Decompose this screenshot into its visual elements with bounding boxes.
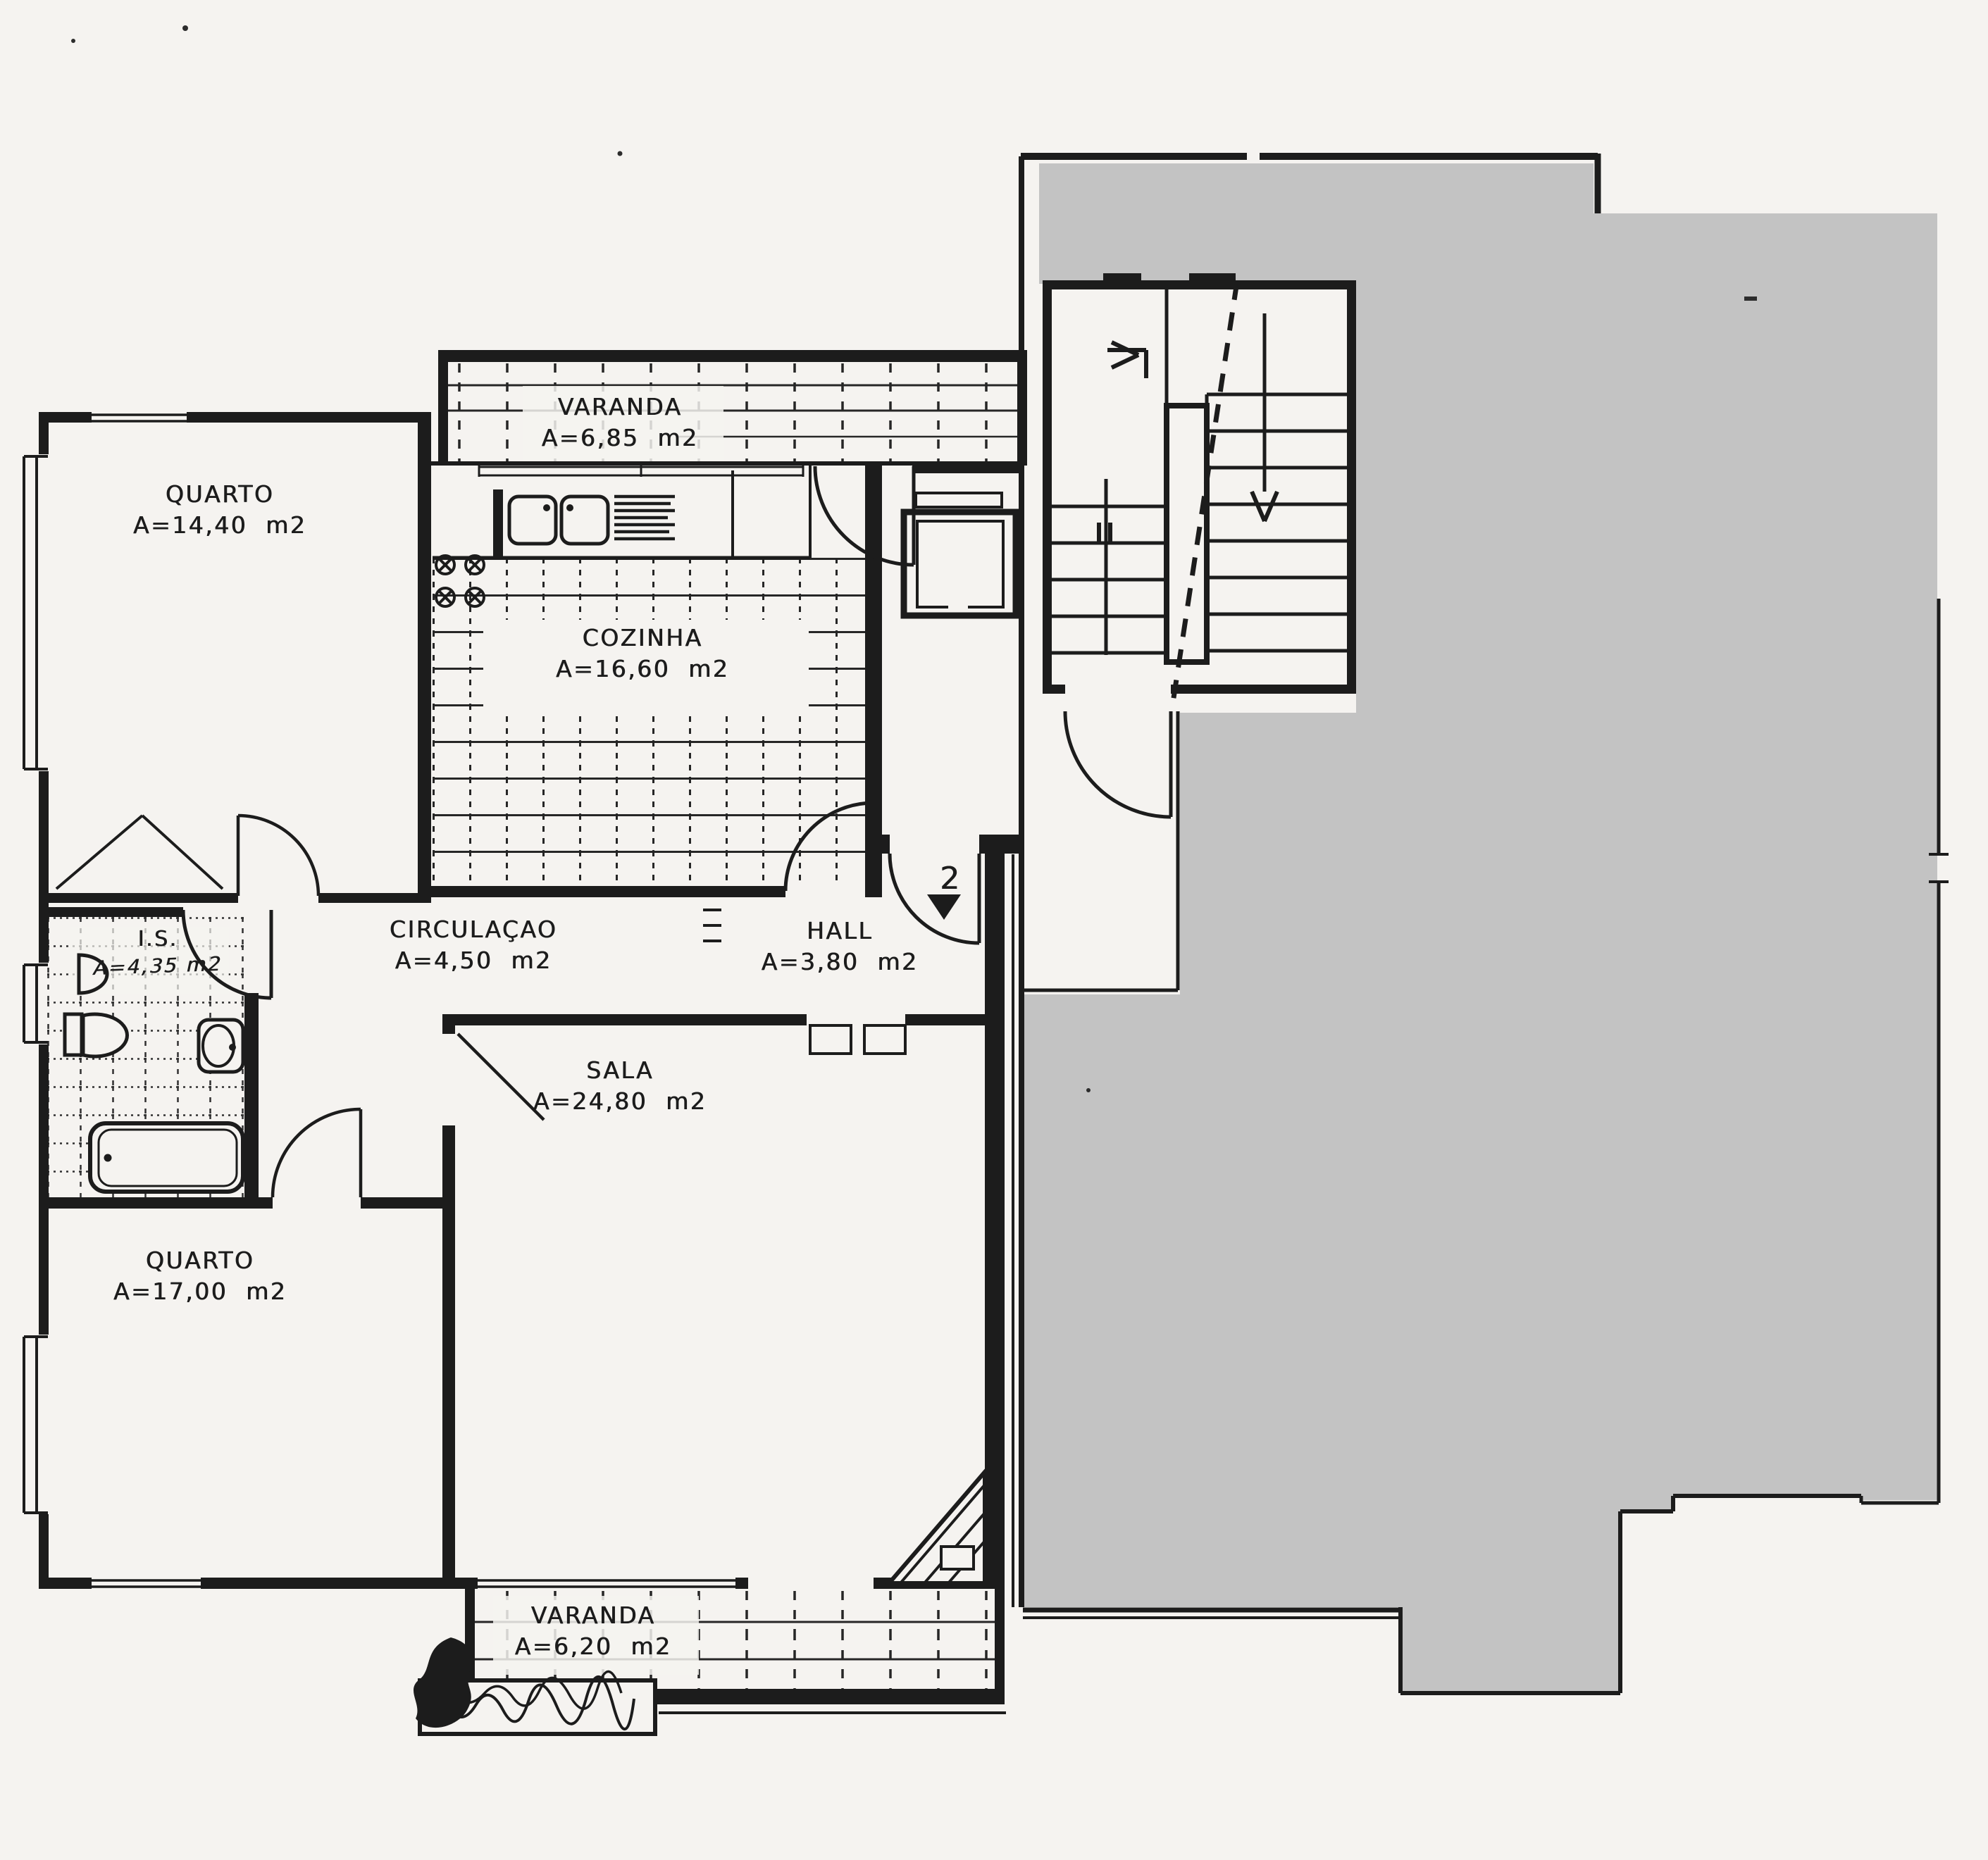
double-door-hall-sala <box>810 1025 905 1054</box>
room-label-hall: HALL A=3,80 m2 <box>762 916 919 977</box>
room-area: A=6,85 m2 <box>542 423 699 454</box>
room-label-quarto-1: QUARTO A=14,40 m2 <box>133 479 306 540</box>
room-area: A=14,40 m2 <box>133 510 306 541</box>
window-sala-bottom <box>478 1580 735 1587</box>
room-name: I.S. <box>94 925 221 954</box>
stair-treads-right <box>1207 394 1347 651</box>
elevator <box>904 493 1016 616</box>
entry-arrow-icon <box>927 894 961 920</box>
scanned-floor-plan-page: VARANDA A=6,85 m2 QUARTO A=14,40 m2 COZI… <box>0 0 1988 1860</box>
room-name: COZINHA <box>556 623 729 654</box>
elevator-car <box>917 521 1003 607</box>
door-quarto2 <box>273 1109 361 1197</box>
window-quarto1-left <box>24 456 48 769</box>
room-name: SALA <box>533 1055 707 1086</box>
room-name: HALL <box>762 916 919 947</box>
window-quarto2-left <box>24 1337 48 1513</box>
room-name: QUARTO <box>133 479 306 510</box>
door-quarto1 <box>238 816 318 896</box>
sink-left-icon <box>509 497 556 544</box>
window-quarto1-top <box>92 415 187 421</box>
apartment-number-label: 2 <box>940 861 959 897</box>
stair-down-arrow <box>1252 492 1277 521</box>
plant-icon <box>414 1637 473 1728</box>
stair-up-arrow <box>1107 342 1146 378</box>
room-label-circulacao: CIRCULAÇAO A=4,50 m2 <box>390 914 557 975</box>
washbasin-icon <box>199 1020 243 1072</box>
elevator-shaft <box>904 512 1016 616</box>
elevator-recess <box>916 493 1002 507</box>
room-label-quarto-2: QUARTO A=17,00 m2 <box>113 1245 287 1306</box>
window-bathroom-left <box>24 965 48 1042</box>
window-quarto2-bottom <box>92 1580 201 1587</box>
room-label-varanda-top: VARANDA A=6,85 m2 <box>542 392 699 453</box>
room-area: A=4,50 m2 <box>390 945 557 976</box>
threshold-ticks <box>703 910 721 941</box>
room-area: A=16,60 m2 <box>556 654 729 685</box>
room-area: A=17,00 m2 <box>113 1276 287 1307</box>
stairwell <box>1043 273 1356 707</box>
room-name: VARANDA <box>515 1600 672 1631</box>
door-stairwell-landing <box>1065 711 1171 817</box>
toilet-icon <box>65 1014 128 1056</box>
room-label-sala: SALA A=24,80 m2 <box>533 1055 707 1116</box>
room-name: VARANDA <box>542 392 699 423</box>
sink-right-icon <box>561 497 608 544</box>
room-label-is: I.S. A=4,35 m2 <box>94 925 221 980</box>
room-name: QUARTO <box>113 1245 287 1276</box>
quarto1-wardrobe-lines <box>56 816 223 889</box>
room-name: CIRCULAÇAO <box>390 914 557 945</box>
stove-drainer-icon <box>614 497 675 539</box>
room-area: A=4,35 m2 <box>91 951 225 981</box>
room-label-cozinha: COZINHA A=16,60 m2 <box>556 623 729 684</box>
kitchen-tiles <box>433 558 865 886</box>
door-balcony-kitchen <box>815 466 914 565</box>
room-area: A=6,20 m2 <box>515 1631 672 1662</box>
floor-plan-drawing <box>0 0 1988 1860</box>
bathtub-icon <box>90 1123 243 1192</box>
room-area: A=24,80 m2 <box>533 1086 707 1117</box>
room-area: A=3,80 m2 <box>762 947 919 978</box>
redacted-neighbor-region <box>1023 163 1937 1693</box>
room-label-varanda-bottom: VARANDA A=6,20 m2 <box>515 1600 672 1661</box>
stair-landing <box>1023 711 1178 990</box>
fireplace <box>889 1472 985 1583</box>
door-sala-leaf <box>458 1034 544 1120</box>
